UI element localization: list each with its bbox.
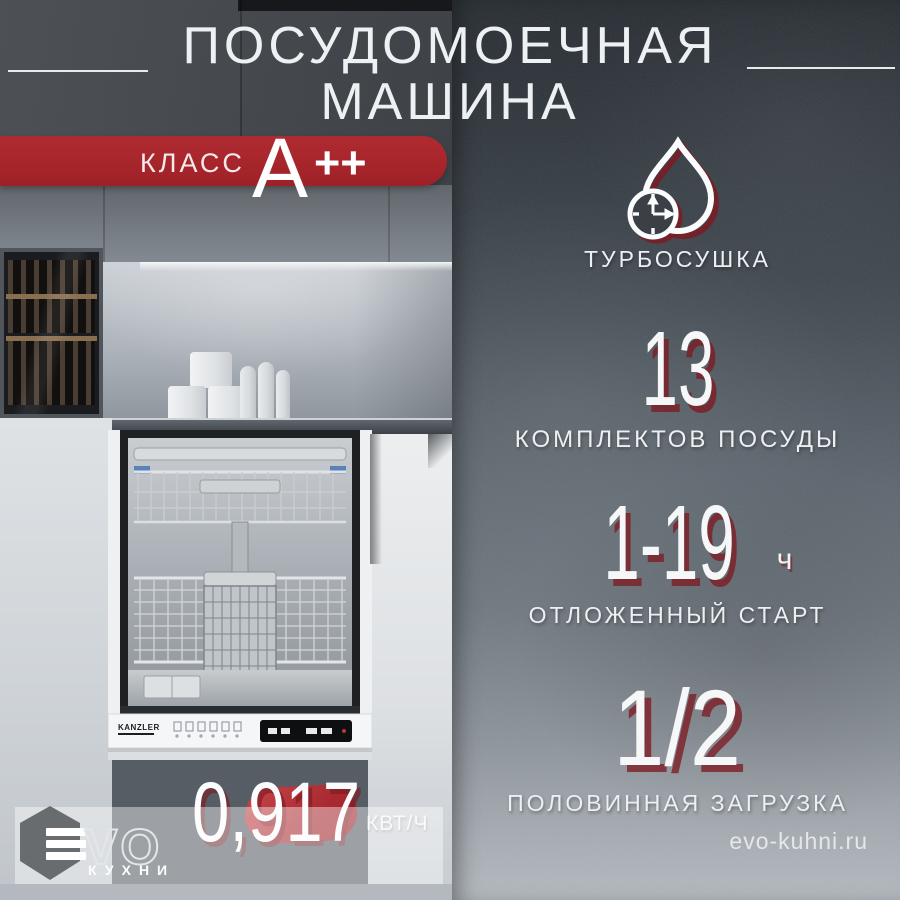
kitchen-bottle xyxy=(258,362,274,426)
door-hinge-band xyxy=(120,706,360,714)
cabinet-door-seam xyxy=(388,185,390,263)
features-column: ТУРБОСУШКА 13 КОМПЛЕКТОВ ПОСУДЫ 1-19ч ОТ… xyxy=(455,0,900,900)
brand-underline xyxy=(118,733,154,735)
top-rail xyxy=(134,448,346,460)
energy-class-badge: КЛАСС A ++ xyxy=(0,136,447,186)
feature-half-label: ПОЛОВИННАЯ ЗАГРУЗКА xyxy=(455,790,900,817)
feature-delay-label: ОТЛОЖЕННЫЙ СТАРТ xyxy=(455,602,900,629)
counter-corner-shadow xyxy=(428,434,452,468)
glass-door-reflection xyxy=(4,252,99,414)
evo-logo-hexagon xyxy=(16,804,88,886)
upper-basket-handle xyxy=(200,480,280,493)
wine-cabinet xyxy=(0,248,103,418)
title-rule-left xyxy=(8,70,148,72)
class-grade: A xyxy=(252,126,308,210)
cabinet-door-seam xyxy=(103,185,105,263)
panel-shadow xyxy=(108,748,372,752)
class-grade-plus: ++ xyxy=(314,140,367,185)
feature-half-value: 1/2 xyxy=(455,674,900,782)
logo-e-bars xyxy=(46,828,86,860)
dishwasher-photo: KANZLER xyxy=(108,430,372,760)
floor xyxy=(0,884,452,900)
promo-poster: KANZLER ПОСУДОМОЕЧНАЯ МАШИНА КЛАСС A ++ xyxy=(0,0,900,900)
feature-sets-value: 13 xyxy=(455,316,900,422)
brand-label: KANZLER xyxy=(118,723,160,732)
plinth xyxy=(108,752,372,760)
class-label: КЛАСС xyxy=(140,148,245,179)
delay-unit: ч xyxy=(777,545,793,575)
evo-logo-caption: КУХНИ xyxy=(88,862,175,878)
water-drop-timer-icon xyxy=(455,132,900,254)
under-cabinet-light xyxy=(140,262,452,271)
kitchen-bottle xyxy=(240,366,256,426)
feature-delay-value: 1-19ч xyxy=(455,490,900,596)
website-url: evo-kuhni.ru xyxy=(729,828,868,855)
kitchen-canister xyxy=(190,352,232,388)
feature-turbo-label: ТУРБОСУШКА xyxy=(455,246,900,273)
cutlery-basket-handle xyxy=(204,572,276,586)
cabinet-top-shadow xyxy=(238,0,454,11)
dishwasher-side-shadow xyxy=(370,434,382,564)
feature-sets-label: КОМПЛЕКТОВ ПОСУДЫ xyxy=(455,426,900,454)
